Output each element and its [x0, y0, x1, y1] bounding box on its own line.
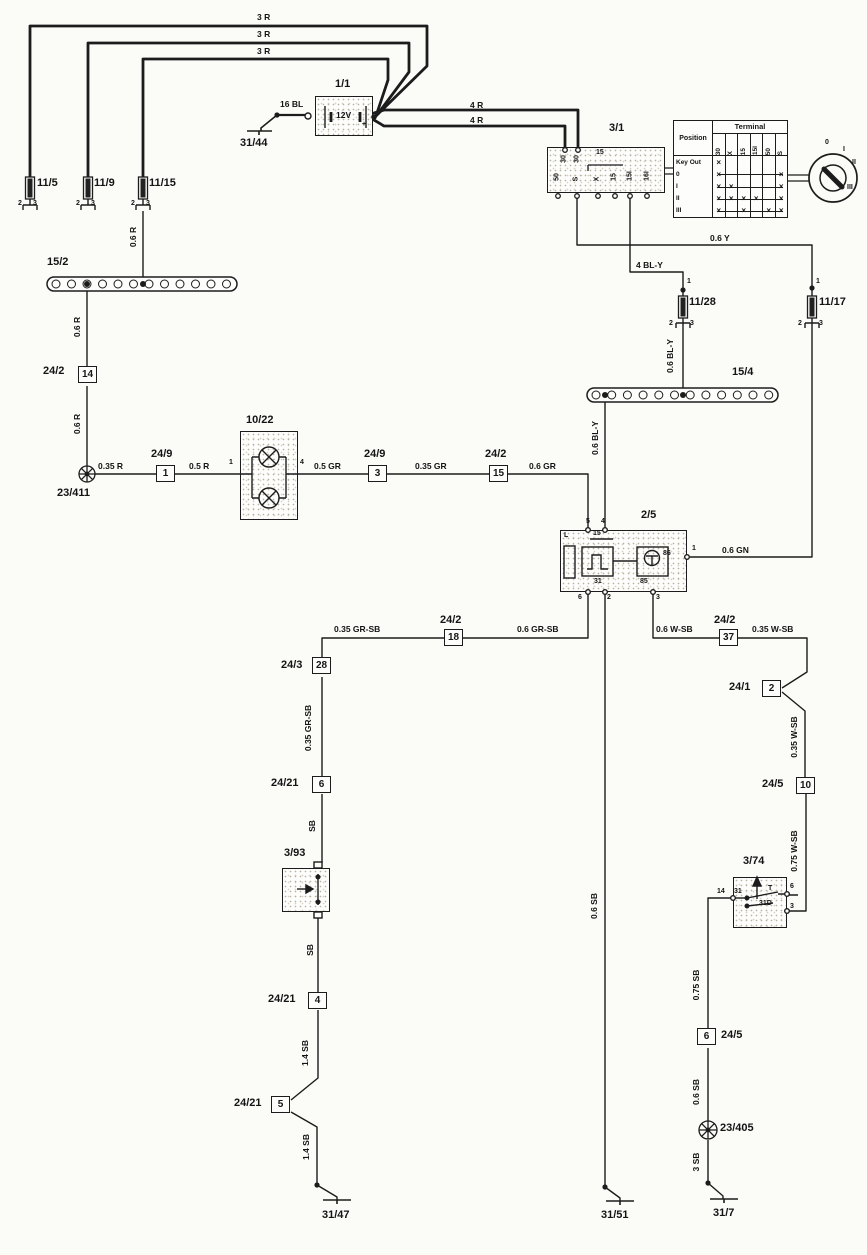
- terminal-column-header: X: [725, 134, 738, 155]
- terminal-column-header: 50: [762, 134, 775, 155]
- battery-voltage: 12V: [336, 110, 351, 120]
- wire-label-vertical: 0.75 SB: [691, 970, 701, 1001]
- terminal-cell: [750, 180, 763, 192]
- pin-label: 1: [229, 459, 233, 466]
- switch-3-93-symbol: [297, 862, 322, 918]
- connector-box: 37: [719, 629, 738, 646]
- component-label: 23/405: [720, 1122, 754, 1134]
- connector-box: 15: [489, 465, 508, 482]
- component-label: 2/5: [641, 509, 656, 521]
- terminal-mark: ×: [775, 168, 788, 180]
- wiring-diagram: Position Key Out0IIIIII Terminal 30X1515…: [0, 0, 867, 1255]
- fuse-11-17: [808, 296, 817, 318]
- connector-box: 3: [368, 465, 387, 482]
- terminal-cell: [737, 180, 750, 192]
- pin-label-rotated: S: [573, 177, 580, 182]
- wire-label: 3 R: [257, 46, 270, 56]
- pin-label: 31D: [759, 900, 772, 907]
- pin-label: 3: [91, 200, 95, 207]
- pin-label: 5: [586, 518, 590, 525]
- connector-box: 4: [308, 992, 327, 1009]
- table-terminal-header: Terminal: [713, 121, 787, 134]
- wire-label: 0.6 GR-SB: [517, 624, 559, 634]
- pin-label: 3: [33, 200, 37, 207]
- pin-label-rotated: X: [594, 177, 601, 182]
- terminal-mark: ×: [725, 180, 738, 192]
- ground-31-44: [247, 115, 277, 135]
- connector-box: 5: [271, 1096, 290, 1113]
- terminal-cell: [750, 205, 763, 217]
- pin-label: 1: [692, 545, 696, 552]
- terminal-row: ×: [713, 156, 787, 168]
- key-position-label: II: [852, 159, 856, 166]
- wire-label-vertical: 0.6 SB: [589, 893, 599, 919]
- wire-label: 0.35 R: [98, 461, 123, 471]
- pin-label: 1: [816, 278, 820, 285]
- pin-label: 3: [790, 903, 794, 910]
- wire-label: 0.6 GR: [529, 461, 556, 471]
- pin-label: 3: [146, 200, 150, 207]
- fuse-11-28: [679, 296, 688, 318]
- key-position-label: I: [843, 146, 845, 153]
- component-label: 24/5: [721, 1029, 742, 1041]
- component-label: 11/9: [94, 177, 115, 189]
- table-position-header: Position: [674, 121, 712, 156]
- pin-label: 2: [18, 200, 22, 207]
- component-label: 24/21: [234, 1097, 262, 1109]
- key-position-label: 0: [825, 139, 829, 146]
- connector-box: 6: [312, 776, 331, 793]
- fuse-11-5: [26, 177, 35, 199]
- pin-label-rotated: 16I: [644, 171, 651, 181]
- component-label: 1/1: [335, 78, 350, 90]
- wire-label: 4 BL-Y: [636, 260, 663, 270]
- terminal-cell: [725, 156, 738, 168]
- wire-label: 0.6 W-SB: [656, 624, 693, 634]
- ground-31-47: [323, 1200, 351, 1204]
- wire-label-vertical: 0.6 R: [128, 227, 138, 247]
- pin-label: 2: [607, 594, 611, 601]
- terminal-cell: [725, 168, 738, 180]
- wire-label-vertical: 0.6 BL-Y: [665, 339, 675, 373]
- ground-31-51: [606, 1201, 634, 1205]
- wire-label: 0.5 R: [189, 461, 209, 471]
- ignition-position-table: Position Key Out0IIIIII Terminal 30X1515…: [673, 120, 788, 218]
- pin-label: 2: [76, 200, 80, 207]
- component-label: 24/21: [271, 777, 299, 789]
- signal-wires: [87, 198, 812, 1201]
- component-label: 24/2: [43, 365, 64, 377]
- wire-label: 0.35 GR: [415, 461, 447, 471]
- position-row-label: 0: [674, 168, 712, 180]
- wire-label-vertical: 0.75 W-SB: [789, 830, 799, 871]
- table-terminal-area: Terminal 30X1515I50S ×××××××××××××××: [713, 121, 787, 217]
- component-label: 24/2: [440, 614, 461, 626]
- terminal-mark: ×: [713, 205, 725, 217]
- wire-label: 0.35 W-SB: [752, 624, 793, 634]
- wire-label-vertical: 0.35 W-SB: [789, 716, 799, 757]
- pin-label: L: [564, 532, 568, 539]
- component-label: 24/2: [485, 448, 506, 460]
- component-label: 24/9: [364, 448, 385, 460]
- power-wires: [30, 26, 578, 177]
- component-label: 11/5: [37, 177, 58, 189]
- wire-label: 0.6 Y: [710, 233, 730, 243]
- component-label: 31/44: [240, 137, 268, 149]
- terminal-cell: [762, 180, 775, 192]
- connector-box: 10: [796, 777, 815, 794]
- component-label: 11/28: [689, 296, 716, 308]
- component-label: 3/74: [743, 855, 764, 867]
- wire-label: 0.35 GR-SB: [334, 624, 380, 634]
- terminal-cell: [762, 168, 775, 180]
- terminal-mark: ×: [725, 193, 738, 205]
- wire-label-vertical: 0.6 R: [72, 317, 82, 337]
- pin-label: 3: [819, 320, 823, 327]
- key-position-label: III: [847, 184, 853, 191]
- fuse-11-15: [139, 177, 148, 199]
- wire-label-vertical: 1.4 SB: [300, 1040, 310, 1066]
- terminal-mark: ×: [713, 156, 725, 168]
- component-label: 15/2: [47, 256, 68, 268]
- wire-label: 0.5 GR: [314, 461, 341, 471]
- pin-label: 4: [601, 518, 605, 525]
- terminal-cell: [725, 205, 738, 217]
- wire-label-vertical: SB: [305, 944, 315, 956]
- connector-box: 28: [312, 657, 331, 674]
- position-row-label: I: [674, 180, 712, 192]
- terminal-row: ×××: [713, 180, 787, 192]
- terminal-mark: ×: [737, 205, 750, 217]
- wire-label: 3 R: [257, 12, 270, 22]
- pin-label: 15: [596, 149, 604, 156]
- wire-label-vertical: SB: [307, 820, 317, 832]
- wire-label: 4 R: [470, 100, 483, 110]
- wire-label-vertical: 0.6 BL-Y: [590, 421, 600, 455]
- pin-label: 2: [669, 320, 673, 327]
- wire-label: 16 BL: [280, 99, 303, 109]
- pin-label: 3: [656, 594, 660, 601]
- component-label: 31/7: [713, 1207, 734, 1219]
- pin-label: 2: [131, 200, 135, 207]
- switch-3-74-symbol: [731, 877, 798, 913]
- position-row-label: Key Out: [674, 156, 712, 168]
- connector-box: 14: [78, 366, 97, 383]
- pin-label: T: [768, 885, 772, 892]
- pin-label: 31: [734, 888, 742, 895]
- component-label: 24/5: [762, 778, 783, 790]
- pin-label: 85: [640, 578, 648, 585]
- terminal-mark: ×: [713, 193, 725, 205]
- component-label: 24/9: [151, 448, 172, 460]
- terminal-mark: ×: [713, 180, 725, 192]
- terminal-cell: [775, 156, 788, 168]
- battery-terminal-icon: [305, 113, 311, 119]
- connector-box: 1: [156, 465, 175, 482]
- lamp-unit-10-22-symbol: [240, 447, 298, 508]
- component-label: 10/22: [246, 414, 274, 426]
- component-label: 24/2: [714, 614, 735, 626]
- lamp-23-405-icon: [699, 1121, 717, 1139]
- terminal-column-header: 30: [713, 134, 725, 155]
- terminal-cell: [750, 168, 763, 180]
- terminal-column-header: 15: [737, 134, 750, 155]
- pin-label-rotated: 30: [561, 155, 568, 163]
- pin-label-rotated: 30: [574, 155, 581, 163]
- position-row-label: III: [674, 205, 712, 217]
- pin-label: 6: [578, 594, 582, 601]
- component-label: 24/21: [268, 993, 296, 1005]
- fuse-11-9: [84, 177, 93, 199]
- pin-label: 14: [717, 888, 725, 895]
- terminal-column-header: 15I: [750, 134, 763, 155]
- pin-label-rotated: 50: [554, 173, 561, 181]
- connector-box: 6: [697, 1028, 716, 1045]
- pin-label: 4: [300, 459, 304, 466]
- component-label: 11/15: [149, 177, 176, 189]
- wire-label: 4 R: [470, 115, 483, 125]
- pin-label: 86: [663, 550, 671, 557]
- component-label: 3/93: [284, 847, 305, 859]
- pin-label: 1: [687, 278, 691, 285]
- terminal-row: ××: [713, 168, 787, 180]
- terminal-cell: [750, 156, 763, 168]
- terminal-mark: ×: [775, 193, 788, 205]
- ground-31-7: [710, 1199, 738, 1203]
- component-label: 24/3: [281, 659, 302, 671]
- wire-label: 0.6 GN: [722, 545, 749, 555]
- key-cylinder-icon: [809, 154, 857, 202]
- terminal-cell: [762, 193, 775, 205]
- terminal-mark: ×: [775, 180, 788, 192]
- pin-label: 31: [594, 578, 602, 585]
- component-label: 23/411: [57, 487, 90, 499]
- terminal-cell: [737, 168, 750, 180]
- wire-label-vertical: 0.6 SB: [691, 1079, 701, 1105]
- wire-label-vertical: 0.35 GR-SB: [303, 705, 313, 751]
- component-label: 3/1: [609, 122, 624, 134]
- pin-label-rotated: 15I: [627, 171, 634, 181]
- pin-label: 6: [790, 883, 794, 890]
- relay-2-5-symbol: [564, 528, 689, 595]
- wire-label-vertical: 0.6 R: [72, 414, 82, 434]
- terminal-mark: ×: [713, 168, 725, 180]
- component-label: 11/17: [819, 296, 846, 308]
- component-label: 15/4: [732, 366, 753, 378]
- terminal-cell: [762, 156, 775, 168]
- terminal-column-header: S: [775, 134, 788, 155]
- pin-label: 2: [798, 320, 802, 327]
- terminal-row: ××××: [713, 205, 787, 217]
- terminal-row: ×××××: [713, 193, 787, 205]
- wire-label: 3 R: [257, 29, 270, 39]
- terminal-mark: ×: [737, 193, 750, 205]
- wire-label-vertical: 1.4 SB: [301, 1134, 311, 1160]
- lamp-23-411-icon: [79, 466, 95, 482]
- component-label: 31/51: [601, 1209, 629, 1221]
- connector-box: 2: [762, 680, 781, 697]
- wire-label-vertical: 3 SB: [691, 1153, 701, 1172]
- terminal-mark: ×: [762, 205, 775, 217]
- pin-label-rotated: 15: [611, 173, 618, 181]
- pin-label: 15: [593, 530, 601, 537]
- terminal-cell: [737, 156, 750, 168]
- position-row-label: II: [674, 193, 712, 205]
- terminal-mark: ×: [750, 193, 763, 205]
- table-position-column: Position Key Out0IIIIII: [674, 121, 713, 217]
- pin-label: +: [362, 121, 366, 128]
- pin-label: 3: [690, 320, 694, 327]
- component-label: 31/47: [322, 1209, 350, 1221]
- component-label: 24/1: [729, 681, 750, 693]
- terminal-mark: ×: [775, 205, 788, 217]
- connector-box: 18: [444, 629, 463, 646]
